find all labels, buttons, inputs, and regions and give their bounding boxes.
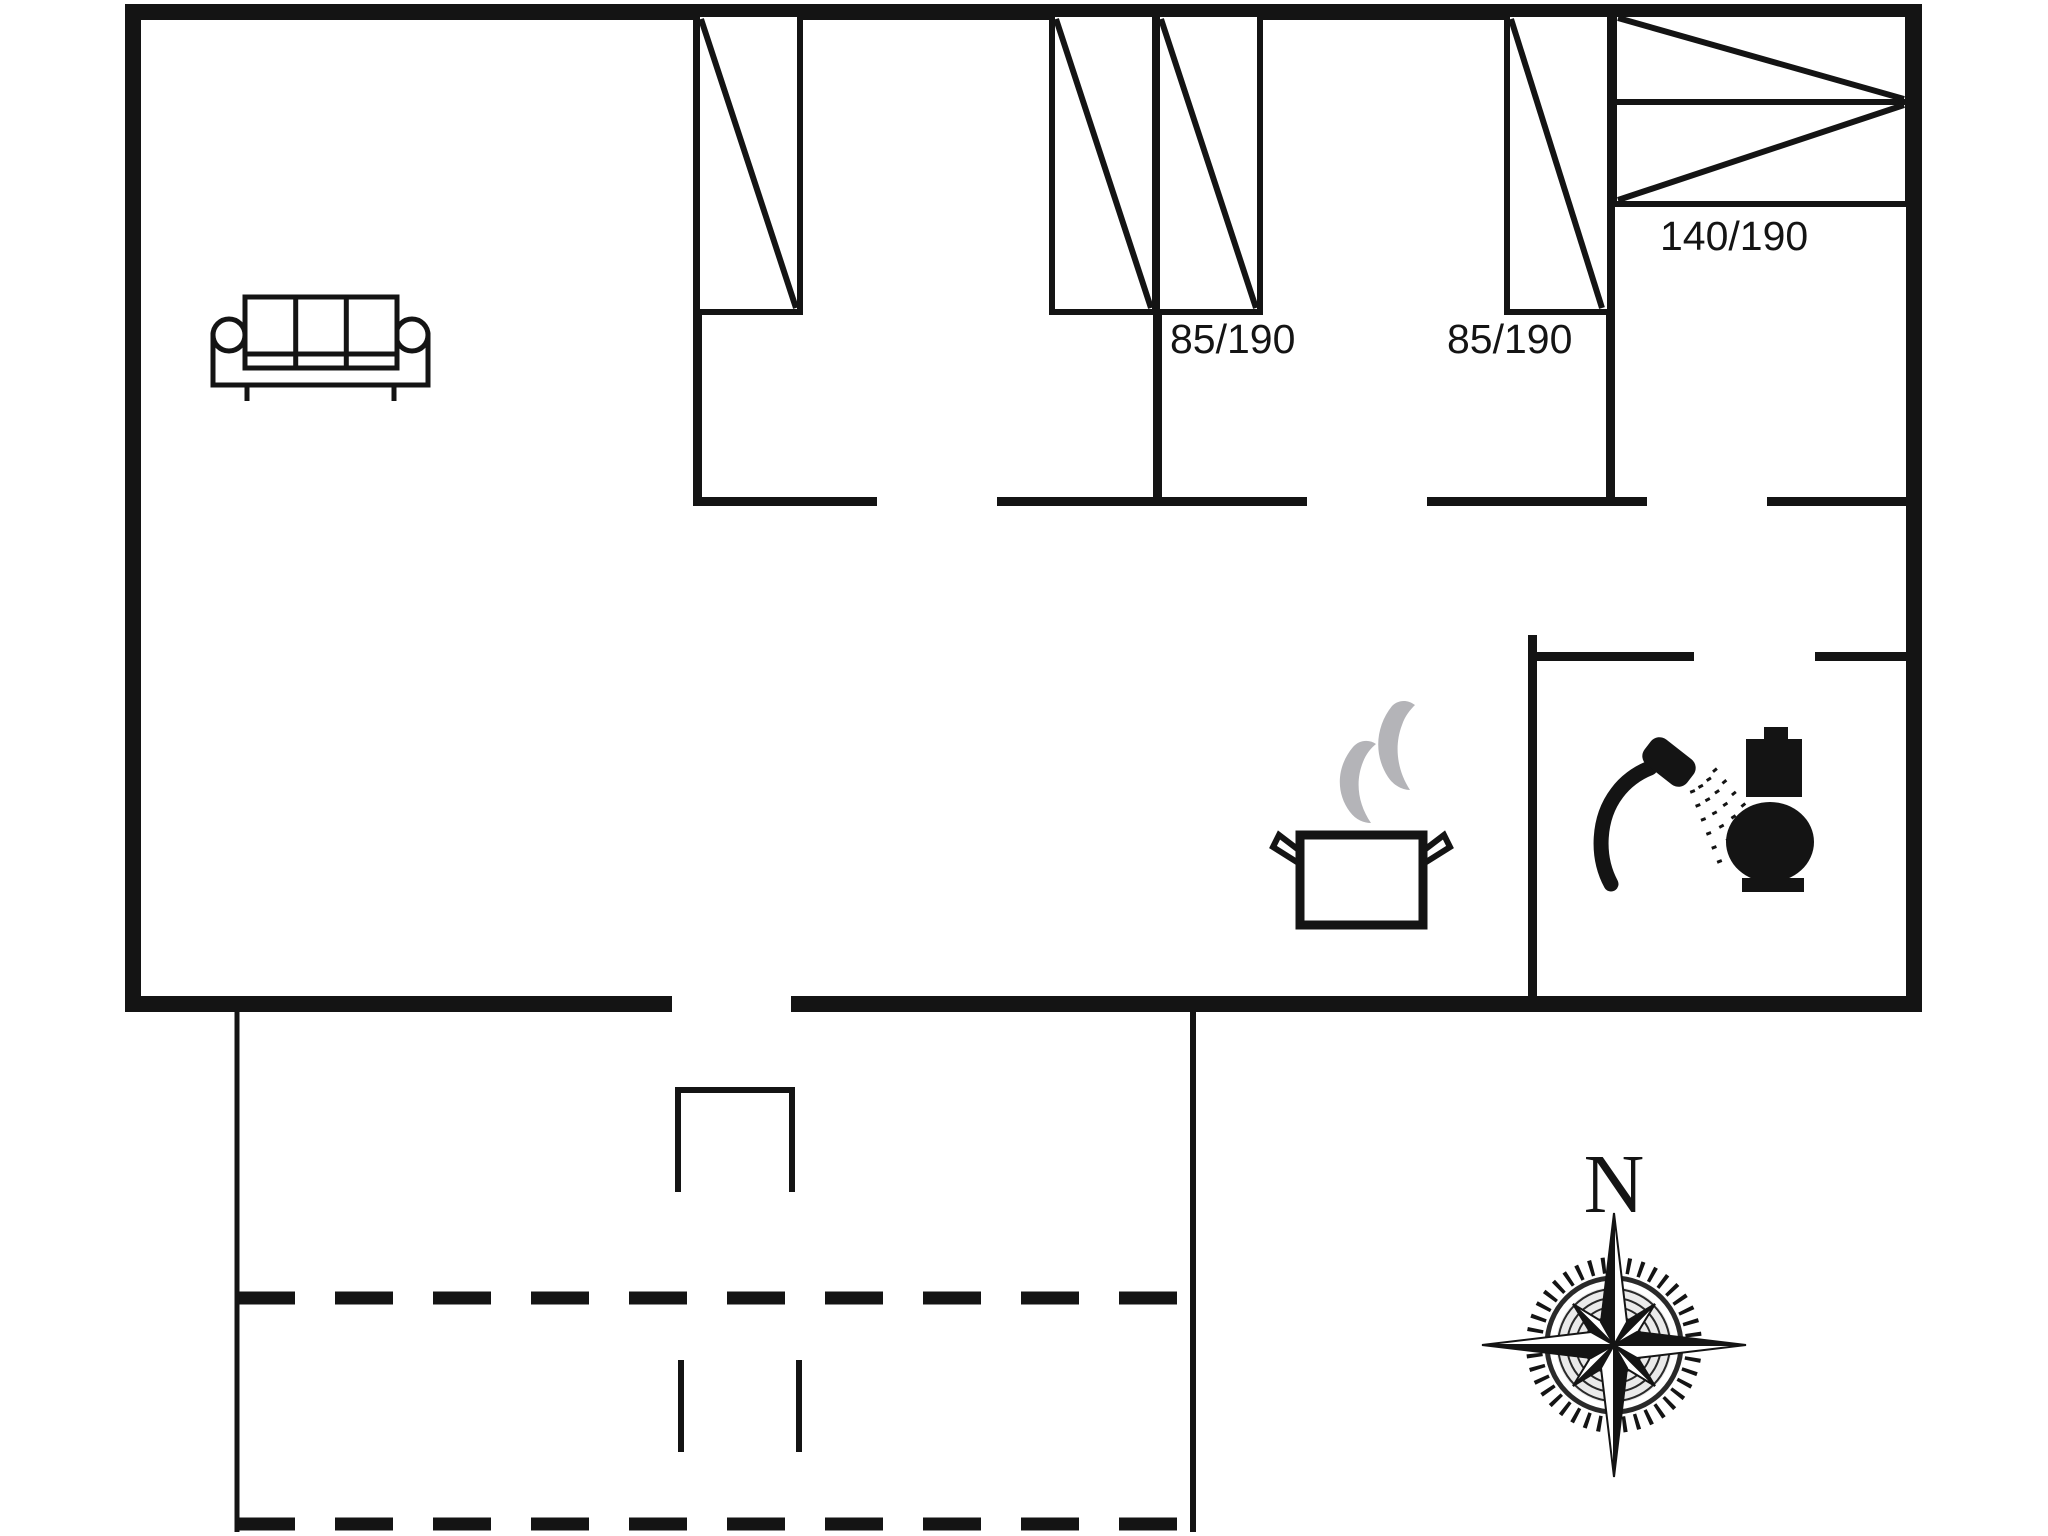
double-bed-icon [1614, 14, 1908, 204]
corridor-wall-segment-1 [693, 497, 877, 506]
bathroom-wall-top-segment-1 [1532, 652, 1694, 661]
corridor-wall-segment-2 [997, 497, 1307, 506]
bed-size-label: 85/190 [1447, 316, 1572, 362]
single-bed-icon [1157, 14, 1260, 312]
bed-size-label: 140/190 [1660, 213, 1808, 259]
bathroom-wall-top-segment-2 [1815, 652, 1907, 661]
corridor-wall-segment-3 [1427, 497, 1647, 506]
terrace [237, 1012, 1193, 1532]
single-bed-icon [1507, 14, 1610, 312]
compass-cardinal-needles [1482, 1213, 1746, 1477]
single-bed-icon [697, 14, 800, 312]
bed-size-label: 85/190 [1170, 316, 1295, 362]
bathroom-wall-left [1528, 635, 1537, 1012]
outer-wall-bottom-right-segment [791, 996, 1922, 1012]
single-bed-icon [1052, 14, 1155, 312]
steam-icon [1340, 701, 1415, 823]
corridor-wall-segment-4 [1767, 497, 1908, 506]
floor-plan: 85/190 85/190 140/190 [0, 0, 2048, 1536]
beds [697, 14, 1908, 312]
terrace-entry-step [678, 1090, 792, 1192]
floor-plan-canvas: 85/190 85/190 140/190 [0, 0, 2048, 1536]
outer-wall-left [125, 4, 141, 1012]
compass-rose-icon: N [1482, 1138, 1746, 1477]
toilet-icon [1726, 727, 1814, 892]
cooking-pot-icon [1273, 835, 1450, 925]
outer-wall-bottom-left-segment [125, 996, 672, 1012]
sofa-icon [213, 297, 428, 401]
